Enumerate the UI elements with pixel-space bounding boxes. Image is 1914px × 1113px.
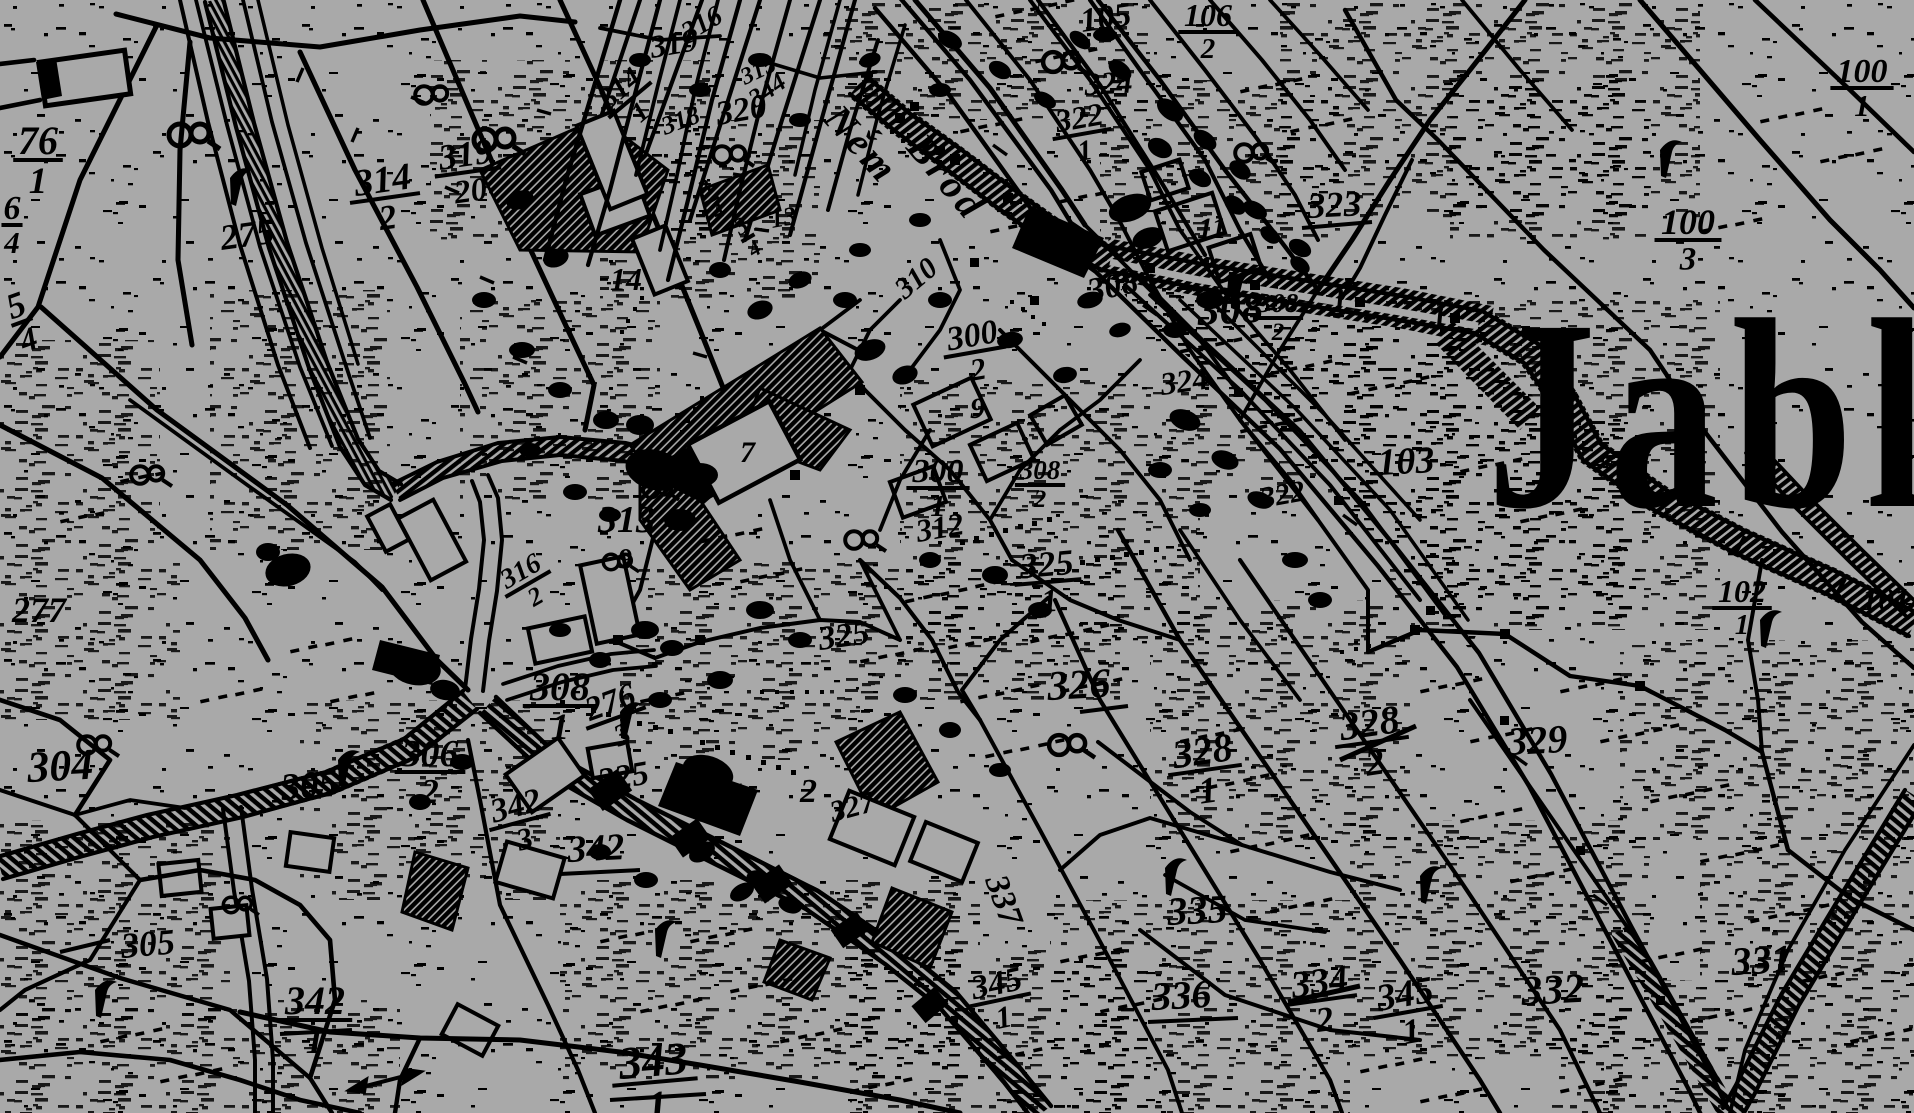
svg-text:106: 106: [1184, 0, 1232, 33]
svg-text:325: 325: [815, 614, 872, 658]
svg-text:1: 1: [29, 161, 48, 202]
svg-text:329: 329: [1505, 716, 1568, 764]
svg-text:101: 101: [1862, 581, 1910, 617]
svg-text:2: 2: [799, 773, 817, 810]
svg-text:300: 300: [912, 453, 964, 490]
svg-text:4: 4: [3, 225, 20, 260]
svg-text:13: 13: [768, 201, 799, 234]
svg-text:306: 306: [401, 733, 459, 775]
svg-text:103: 103: [1376, 439, 1435, 484]
svg-text:324: 324: [1157, 360, 1211, 402]
svg-text:308: 308: [1019, 455, 1061, 485]
svg-text:100: 100: [1837, 53, 1888, 90]
svg-text:335: 335: [1165, 886, 1228, 934]
svg-text:342: 342: [565, 826, 625, 871]
svg-text:326: 326: [1045, 661, 1111, 710]
svg-text:20: 20: [451, 171, 490, 211]
svg-text:102: 102: [1718, 573, 1766, 609]
svg-text:9: 9: [970, 392, 985, 425]
svg-text:305: 305: [278, 762, 339, 809]
svg-text:2: 2: [1033, 486, 1047, 513]
svg-text:332: 332: [1519, 966, 1585, 1015]
svg-text:2: 2: [1271, 319, 1285, 346]
svg-text:324: 324: [1082, 64, 1133, 103]
svg-text:342: 342: [284, 978, 345, 1023]
svg-text:7: 7: [740, 436, 756, 469]
svg-text:1: 1: [1854, 88, 1870, 123]
svg-text:1: 1: [551, 707, 570, 748]
svg-text:14: 14: [610, 261, 642, 297]
svg-text:76: 76: [18, 118, 58, 163]
svg-text:331: 331: [1729, 936, 1792, 984]
svg-text:304: 304: [25, 740, 94, 792]
svg-text:305: 305: [118, 921, 176, 966]
svg-text:11: 11: [1198, 212, 1226, 245]
svg-text:313: 313: [597, 499, 655, 541]
svg-text:6: 6: [4, 190, 21, 227]
svg-text:2: 2: [1200, 33, 1216, 65]
svg-text:277: 277: [11, 590, 68, 630]
svg-text:105: 105: [1078, 0, 1134, 40]
svg-text:323: 323: [1305, 183, 1362, 226]
svg-text:308: 308: [1195, 283, 1264, 335]
svg-text:1: 1: [1735, 609, 1750, 641]
svg-text:1: 1: [306, 1021, 325, 1062]
svg-text:100: 100: [1661, 202, 1715, 242]
svg-text:336: 336: [1149, 971, 1212, 1019]
svg-text:1: 1: [1040, 583, 1060, 620]
svg-text:2: 2: [420, 772, 439, 811]
svg-text:308: 308: [529, 664, 590, 709]
svg-text:275: 275: [217, 211, 277, 258]
